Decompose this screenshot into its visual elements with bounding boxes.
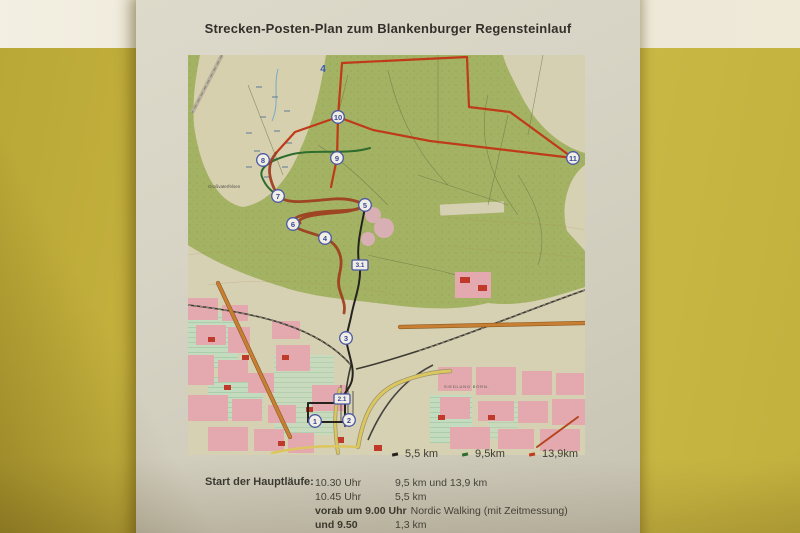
svg-text:3.1: 3.1 (356, 262, 365, 269)
route-map: GroßvaterfelsenSIEDLUNG BÖRN. 4108911756… (188, 55, 585, 455)
schedule-row: und 9.501,3 km (315, 518, 625, 532)
svg-text:3: 3 (344, 334, 348, 343)
route-map-svg: GroßvaterfelsenSIEDLUNG BÖRN. 4108911756… (188, 55, 585, 455)
checkpoint-badge: 7 (272, 190, 285, 203)
photo-scene: Strecken-Posten-Plan zum Blankenburger R… (0, 0, 800, 533)
schedule-heading: Start der Hauptläufe: (205, 476, 314, 488)
checkpoint-badge: 9 (331, 152, 344, 165)
legend-item: 9,5km (462, 448, 505, 460)
map-region-label: SIEDLUNG BÖRN. (444, 384, 489, 389)
svg-text:6: 6 (291, 220, 295, 229)
legend-item: 5,5 km (392, 448, 438, 460)
checkpoint-badge: 2 (343, 414, 356, 427)
svg-text:9: 9 (335, 154, 339, 163)
schedule-distance: Nordic Walking (mit Zeitmessung) (411, 504, 568, 518)
schedule-row: vorab um 9.00 UhrNordic Walking (mit Zei… (315, 504, 625, 518)
checkpoint-box: 3.1 (352, 260, 368, 270)
map-region-label: Großvaterfelsen (208, 184, 241, 189)
checkpoint-badge: 11 (567, 152, 580, 165)
legend-route-marker (392, 452, 398, 456)
schedule-row: 10.30 Uhr9,5 km und 13,9 km (315, 476, 625, 490)
poster: Strecken-Posten-Plan zum Blankenburger R… (136, 0, 640, 533)
legend-label: 9,5km (475, 448, 505, 460)
schedule-distance: 9,5 km und 13,9 km (395, 476, 487, 490)
checkpoint-badge: 10 (332, 111, 345, 124)
legend-route-marker (529, 452, 535, 456)
svg-text:8: 8 (261, 156, 265, 165)
svg-text:5: 5 (363, 201, 367, 210)
map-legend: 5,5 km9,5km13,9km (392, 448, 578, 460)
checkpoint-badge: 3 (340, 332, 353, 345)
schedule-time: und 9.50 (315, 518, 395, 532)
forest-compound (455, 272, 491, 298)
legend-label: 5,5 km (405, 448, 438, 460)
svg-text:11: 11 (569, 154, 577, 163)
schedule-time: vorab um 9.00 Uhr (315, 504, 411, 518)
schedule-time: 10.45 Uhr (315, 490, 395, 504)
poster-title: Strecken-Posten-Plan zum Blankenburger R… (136, 21, 640, 36)
legend-label: 13,9km (542, 448, 578, 460)
schedule-distance: 1,3 km (395, 518, 427, 532)
checkpoint-badge: 8 (257, 154, 270, 167)
svg-text:2: 2 (347, 416, 351, 425)
svg-text:7: 7 (276, 192, 280, 201)
svg-text:4: 4 (320, 64, 326, 75)
svg-text:1: 1 (313, 417, 317, 426)
map-sheet-number: 4 (320, 64, 326, 75)
schedule-time: 10.30 Uhr (315, 476, 395, 490)
checkpoint-badge: 1 (309, 415, 322, 428)
legend-item: 13,9km (529, 448, 578, 460)
schedule-row: 10.45 Uhr5,5 km (315, 490, 625, 504)
schedule-rows: 10.30 Uhr9,5 km und 13,9 km10.45 Uhr5,5 … (315, 476, 625, 532)
schedule-distance: 5,5 km (395, 490, 427, 504)
checkpoint-badge: 5 (359, 199, 372, 212)
checkpoint-badge: 4 (319, 232, 332, 245)
svg-text:2.1: 2.1 (338, 396, 347, 403)
legend-route-marker (462, 452, 468, 456)
checkpoint-box: 2.1 (334, 394, 350, 404)
svg-text:10: 10 (334, 113, 342, 122)
checkpoint-badge: 6 (287, 218, 300, 231)
